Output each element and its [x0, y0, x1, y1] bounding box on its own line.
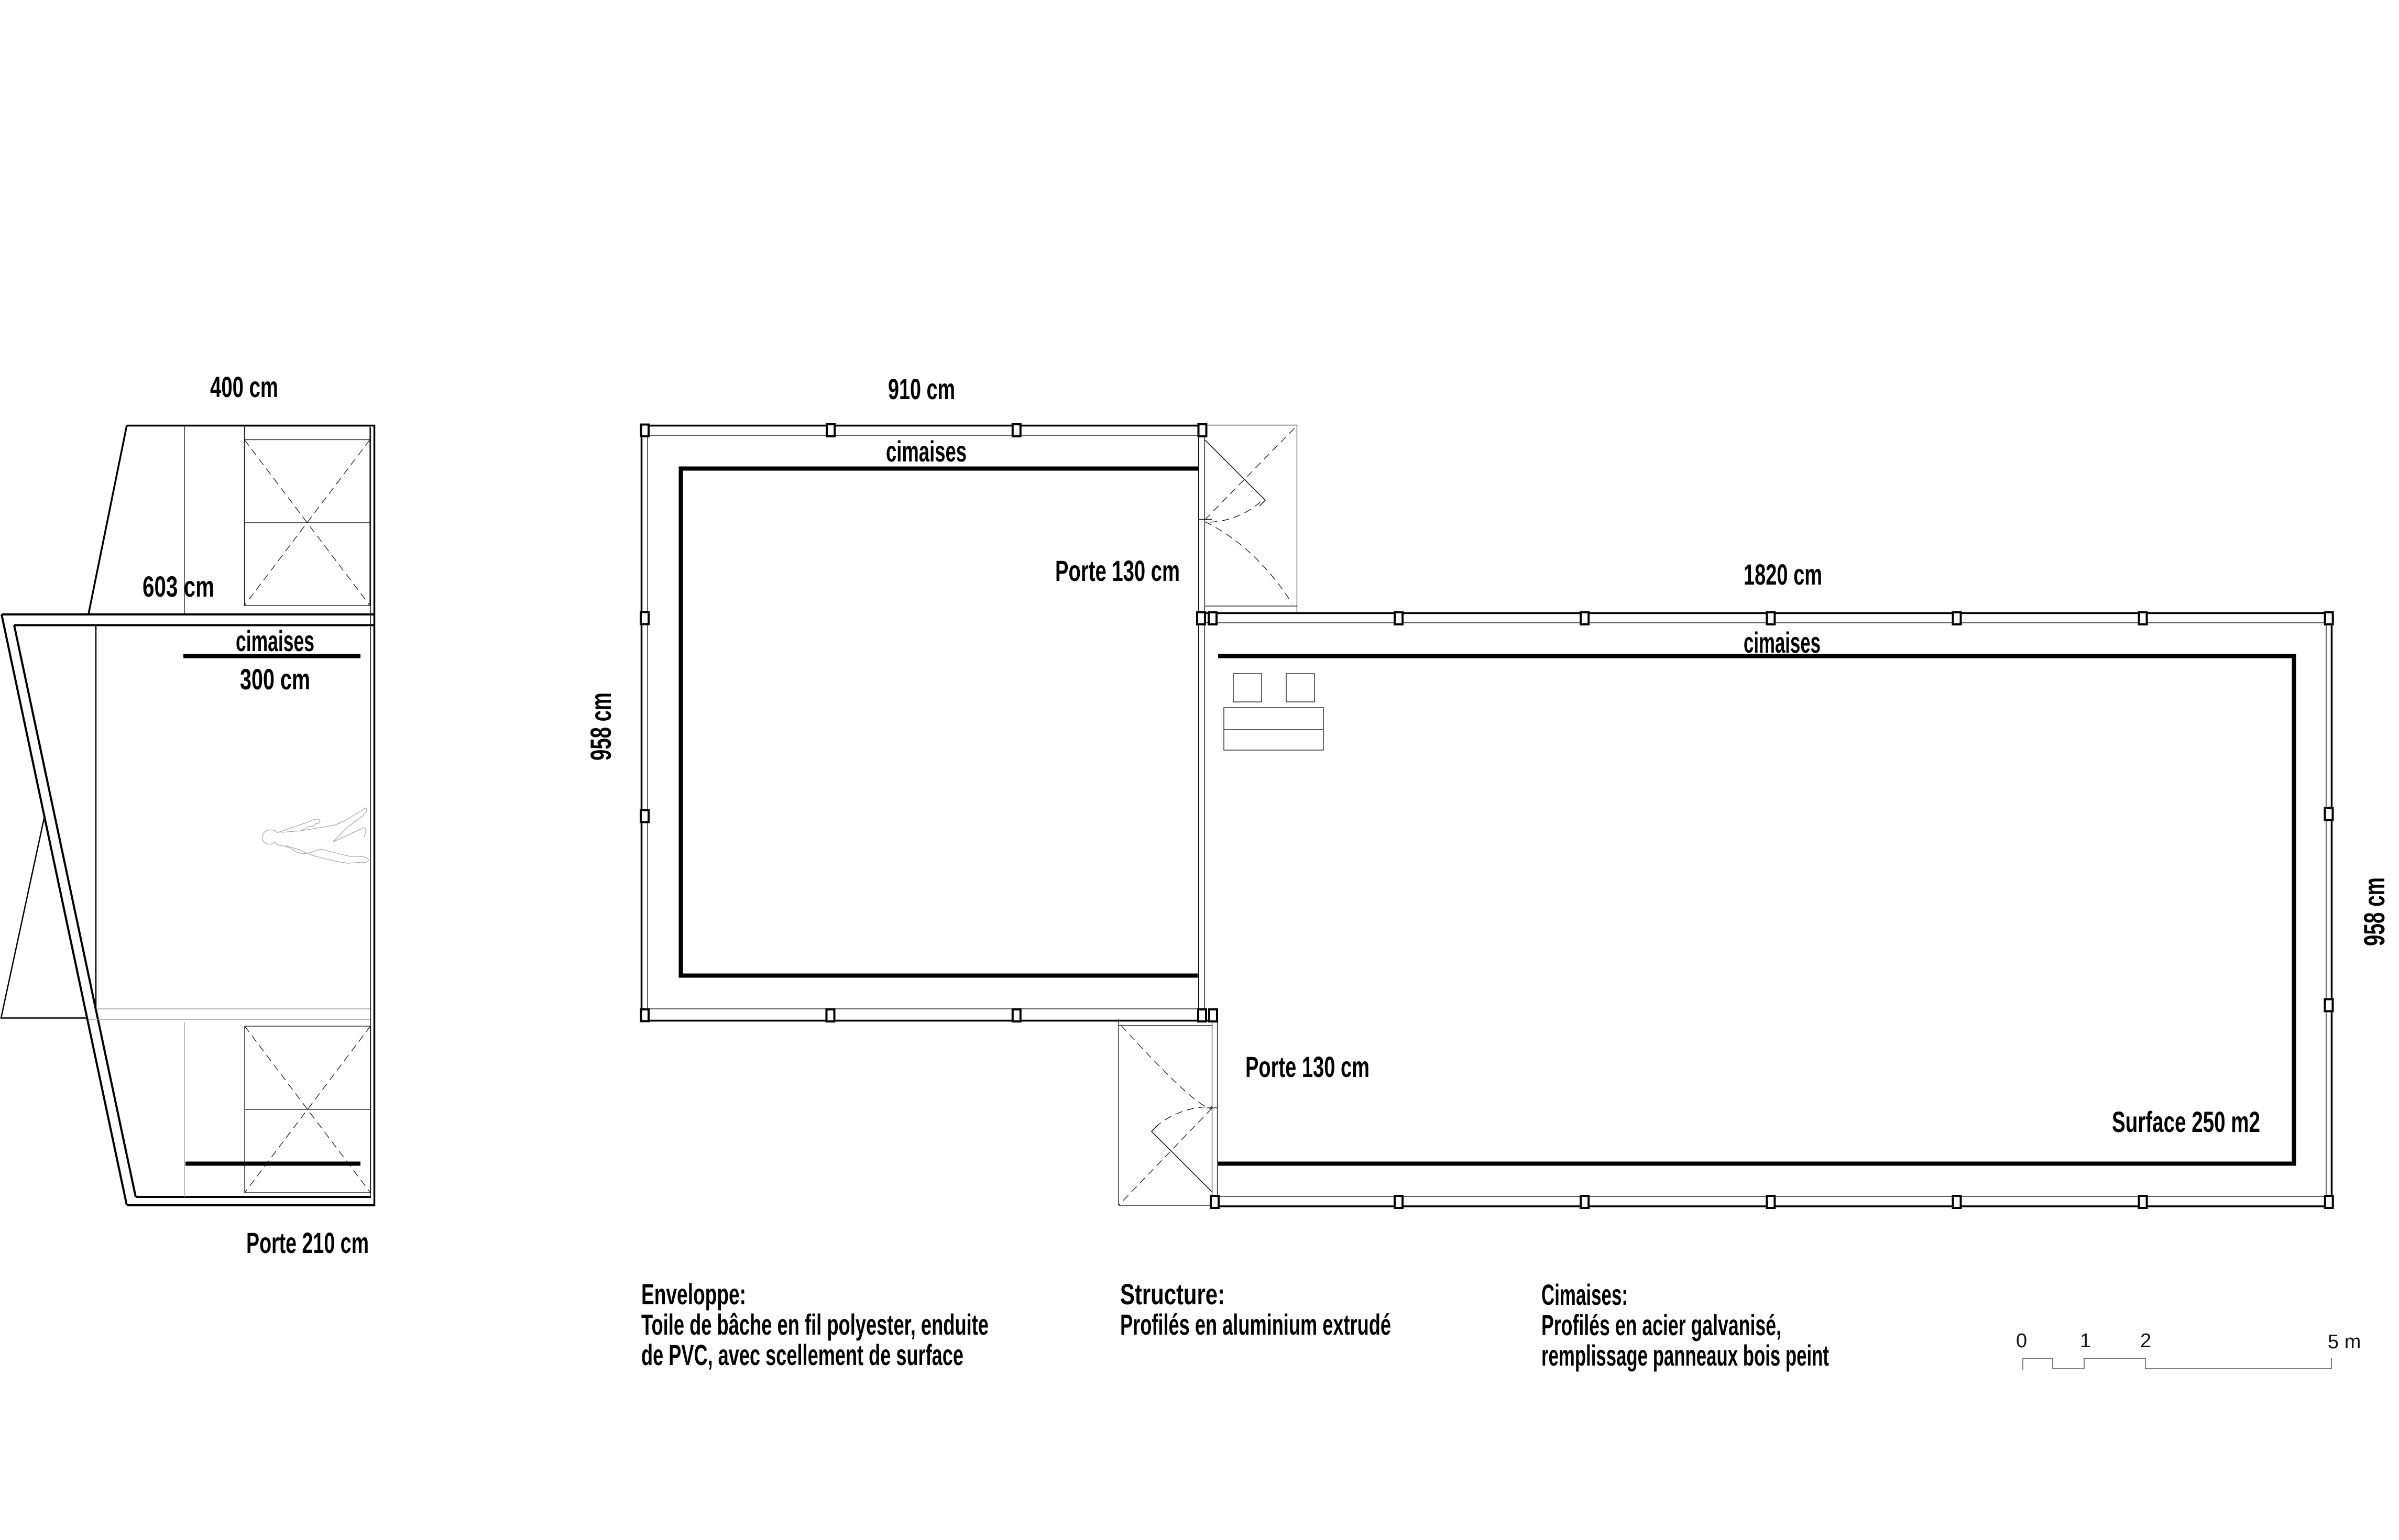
svg-text:400 cm: 400 cm — [210, 370, 278, 403]
svg-text:300 cm: 300 cm — [240, 663, 310, 696]
svg-text:cimaises: cimaises — [236, 624, 314, 657]
svg-text:1: 1 — [2080, 1330, 2091, 1352]
svg-text:910 cm: 910 cm — [888, 372, 955, 405]
svg-text:5 m: 5 m — [2328, 1331, 2361, 1353]
svg-text:Surface 250 m2: Surface 250 m2 — [2112, 1105, 2260, 1138]
svg-text:1820 cm: 1820 cm — [1744, 558, 1822, 591]
svg-text:Porte 210 cm: Porte 210 cm — [246, 1226, 369, 1259]
svg-text:cimaises: cimaises — [1744, 626, 1821, 659]
svg-text:remplissage panneaux bois pein: remplissage panneaux bois peint — [1541, 1339, 1829, 1372]
svg-text:0: 0 — [2016, 1330, 2027, 1352]
svg-text:Enveloppe:: Enveloppe: — [641, 1278, 746, 1311]
svg-text:2: 2 — [2140, 1330, 2151, 1352]
svg-text:Cimaises:: Cimaises: — [1541, 1278, 1628, 1311]
svg-text:958 cm: 958 cm — [2358, 877, 2391, 946]
svg-text:Toile de bâche en fil polyeste: Toile de bâche en fil polyester, enduite — [641, 1308, 989, 1341]
svg-text:Structure:: Structure: — [1120, 1278, 1225, 1311]
svg-text:Porte 130 cm: Porte 130 cm — [1055, 554, 1180, 587]
svg-text:Profilés en acier galvanisé,: Profilés en acier galvanisé, — [1541, 1308, 1781, 1341]
svg-text:Porte 130 cm: Porte 130 cm — [1245, 1050, 1370, 1083]
svg-text:cimaises: cimaises — [886, 435, 967, 468]
svg-text:958 cm: 958 cm — [584, 692, 617, 761]
svg-text:Profilés en aluminium extrudé: Profilés en aluminium extrudé — [1120, 1308, 1391, 1341]
svg-text:603 cm: 603 cm — [143, 570, 214, 603]
svg-text:de PVC, avec scellement de sur: de PVC, avec scellement de surface — [641, 1338, 963, 1371]
